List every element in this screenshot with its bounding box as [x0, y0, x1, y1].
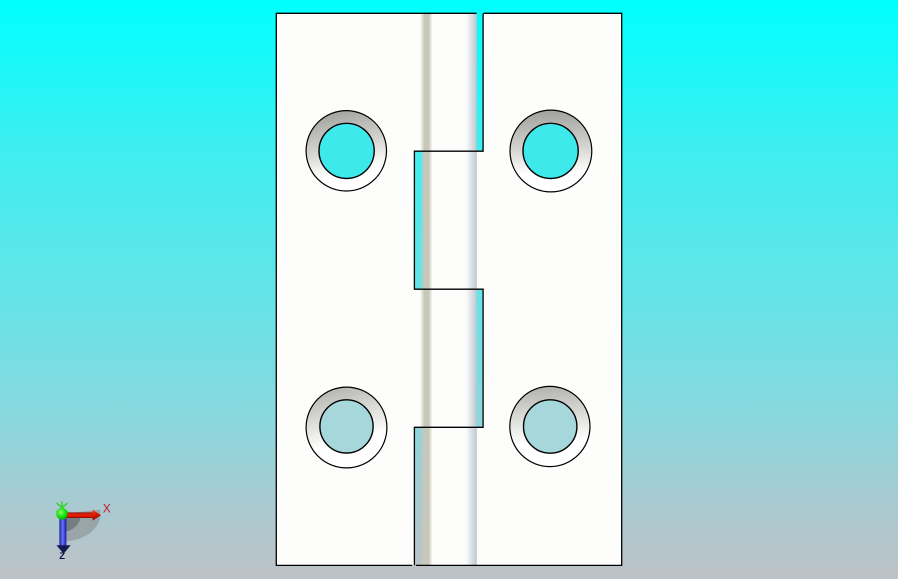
- svg-text:Z: Z: [59, 551, 65, 562]
- svg-text:X: X: [103, 502, 111, 516]
